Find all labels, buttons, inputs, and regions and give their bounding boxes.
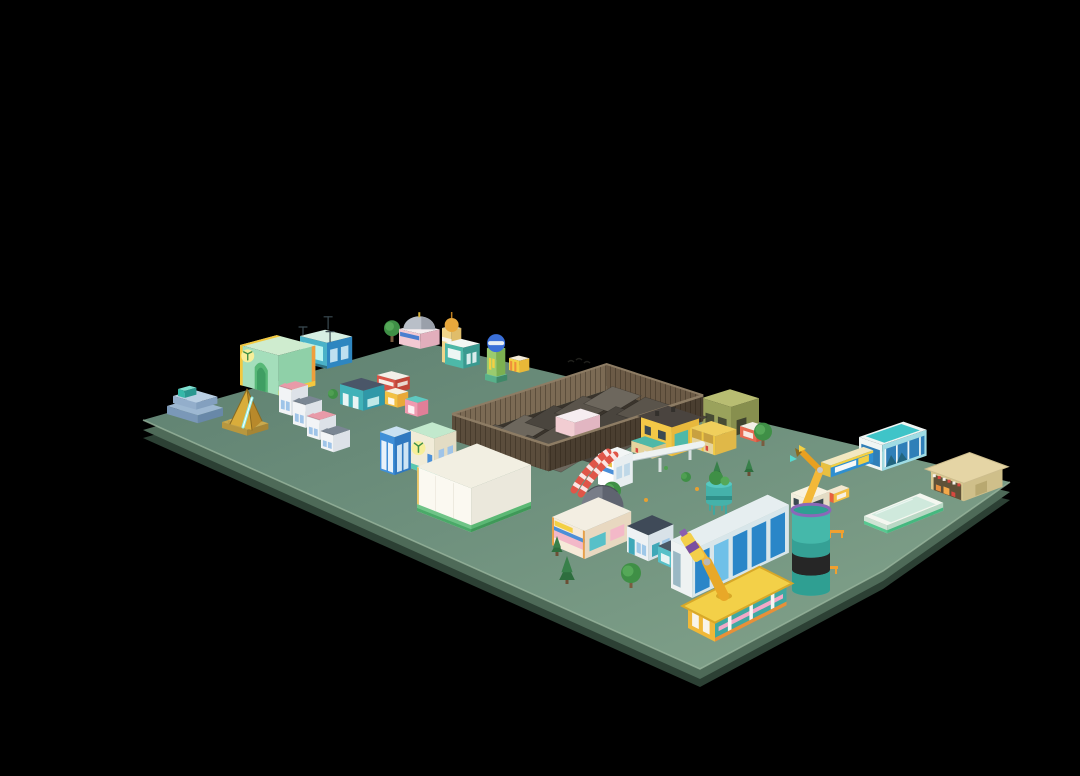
statue-tower[interactable] bbox=[485, 334, 507, 383]
small-shop-pink[interactable] bbox=[405, 396, 428, 417]
teal-white-building[interactable] bbox=[445, 339, 480, 369]
3d-scene-viewport[interactable] bbox=[0, 0, 1080, 776]
wall-birds bbox=[568, 359, 590, 364]
teal-shops[interactable] bbox=[340, 378, 384, 411]
round-tree-back[interactable] bbox=[384, 320, 400, 342]
scene-canvas[interactable] bbox=[0, 0, 1080, 776]
blue-locker-building[interactable] bbox=[380, 426, 411, 475]
bush-west[interactable] bbox=[328, 389, 338, 399]
bush-mid[interactable] bbox=[681, 472, 691, 482]
shrine-temple[interactable] bbox=[399, 312, 440, 349]
gift-shack[interactable] bbox=[509, 356, 529, 373]
small-shop-yellow[interactable] bbox=[385, 388, 408, 408]
